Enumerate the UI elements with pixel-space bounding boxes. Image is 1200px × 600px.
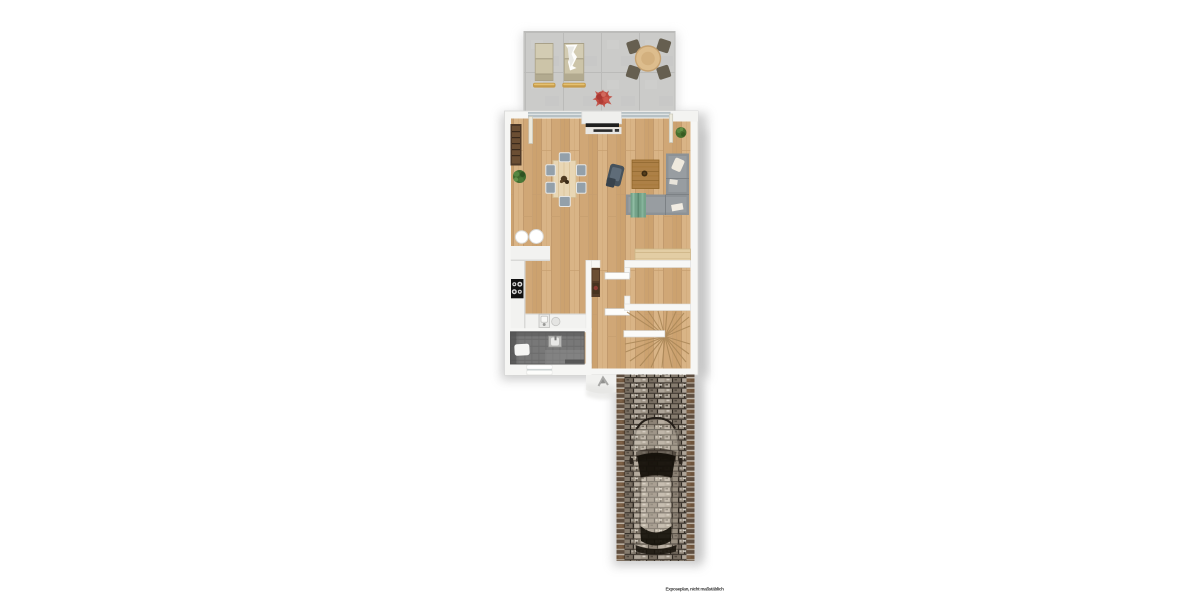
svg-text:Exposeplan, nicht maßstäblich: Exposeplan, nicht maßstäblich	[666, 587, 725, 592]
